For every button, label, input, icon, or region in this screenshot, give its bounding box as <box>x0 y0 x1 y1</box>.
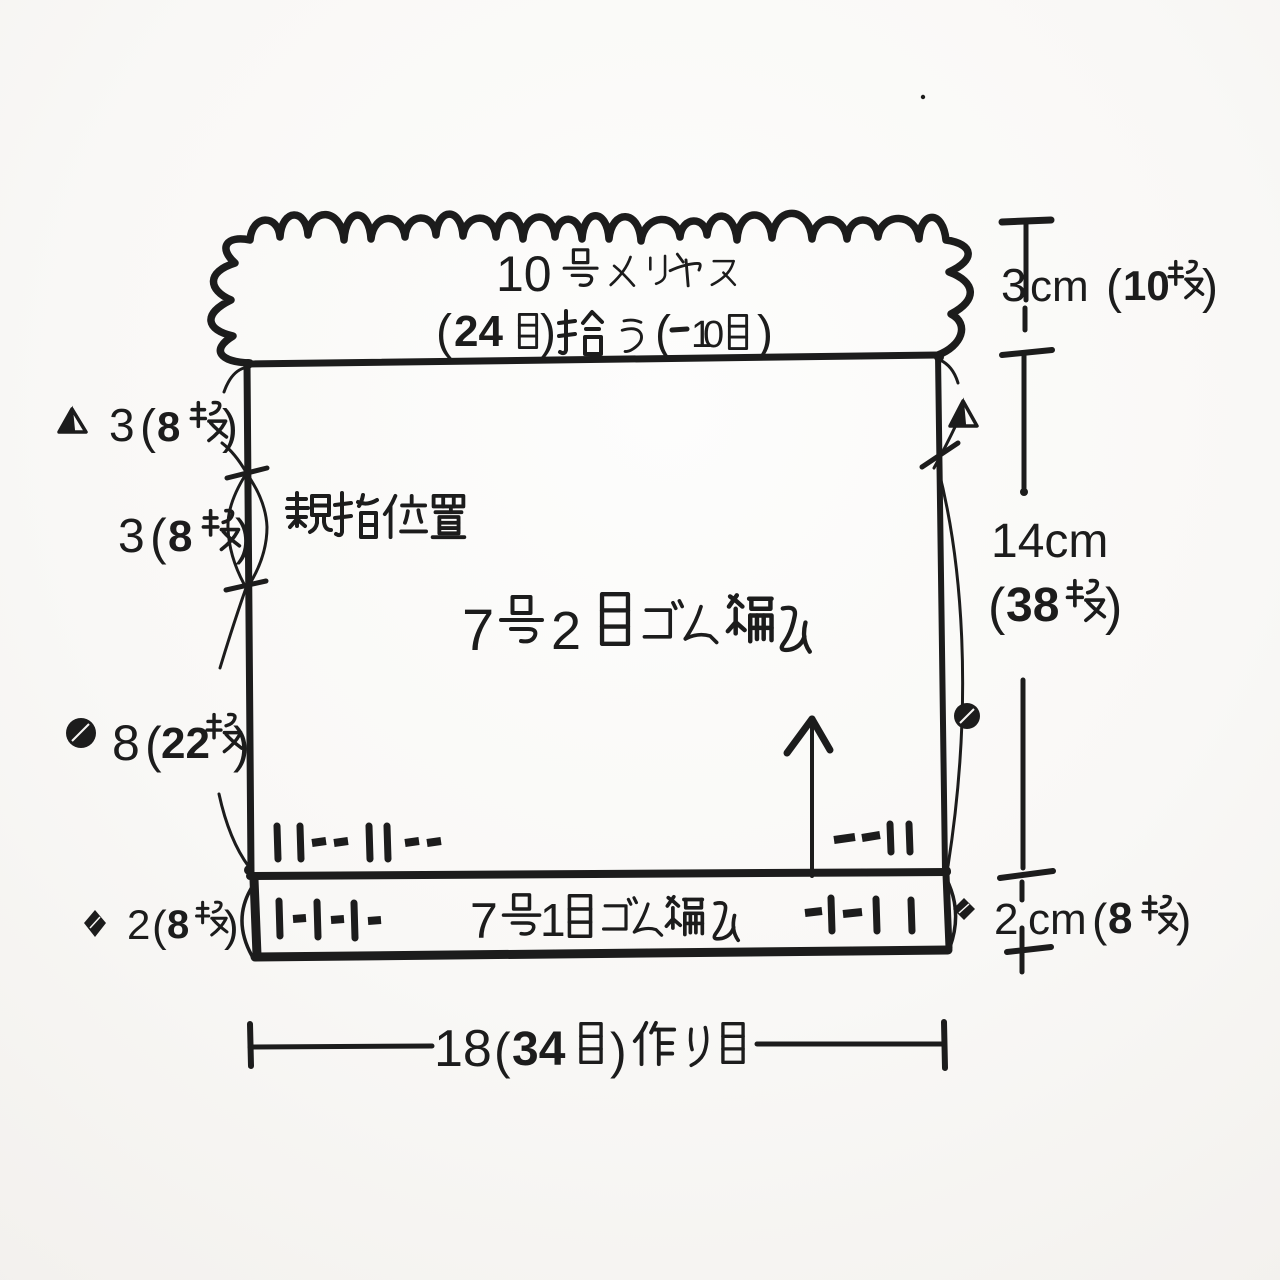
svg-text:24: 24 <box>454 307 503 356</box>
svg-text:8: 8 <box>157 403 180 450</box>
svg-text:10: 10 <box>1123 262 1170 309</box>
svg-text:(: ( <box>988 578 1006 636</box>
svg-text:14cm: 14cm <box>991 515 1108 568</box>
svg-text:2: 2 <box>994 895 1018 944</box>
svg-text:3: 3 <box>1001 259 1027 311</box>
svg-text:8: 8 <box>1108 894 1132 943</box>
svg-text:7: 7 <box>470 893 498 949</box>
svg-text:0: 0 <box>703 314 724 356</box>
svg-text:): ) <box>610 1023 627 1079</box>
svg-text:22: 22 <box>161 719 210 768</box>
svg-text:): ) <box>233 717 250 773</box>
svg-text:(: ( <box>140 401 156 454</box>
svg-text:): ) <box>757 307 773 360</box>
svg-text:2: 2 <box>127 901 150 948</box>
svg-text:2: 2 <box>551 601 581 661</box>
svg-text:(: ( <box>145 717 162 773</box>
svg-text:): ) <box>540 306 556 359</box>
svg-text:8: 8 <box>167 903 189 947</box>
svg-text:(: ( <box>152 902 167 951</box>
svg-text:8: 8 <box>112 715 140 771</box>
svg-text:(: ( <box>655 307 671 360</box>
svg-text:7: 7 <box>462 598 494 663</box>
svg-text:(: ( <box>1092 894 1108 946</box>
svg-text:cm: cm <box>1030 262 1089 311</box>
svg-text:(: ( <box>150 509 167 565</box>
svg-text:(: ( <box>494 1023 511 1079</box>
svg-text:): ) <box>1202 261 1218 314</box>
svg-text:): ) <box>224 902 239 951</box>
svg-text:): ) <box>222 401 238 454</box>
svg-text:): ) <box>1176 894 1191 946</box>
svg-text:18: 18 <box>434 1020 492 1078</box>
svg-text:38: 38 <box>1006 579 1059 632</box>
svg-text:10: 10 <box>496 246 552 302</box>
svg-text:(: ( <box>1106 261 1122 314</box>
svg-text:3: 3 <box>109 399 135 451</box>
svg-text:): ) <box>235 509 252 565</box>
svg-text:1: 1 <box>540 894 566 946</box>
svg-text:8: 8 <box>168 512 192 561</box>
svg-text:(: ( <box>436 306 452 359</box>
svg-text:): ) <box>1105 578 1122 636</box>
svg-text:cm: cm <box>1028 895 1087 944</box>
svg-text:34: 34 <box>512 1023 566 1076</box>
svg-text:3: 3 <box>118 510 145 563</box>
